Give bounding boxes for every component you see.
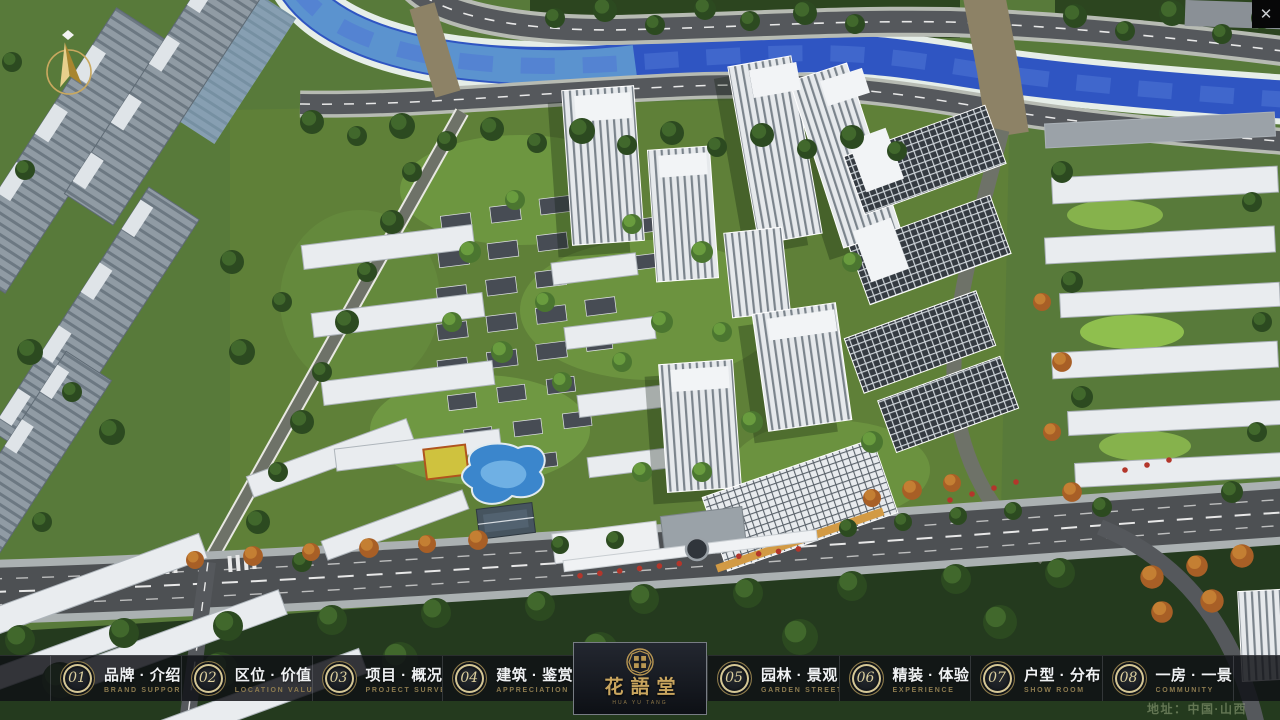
bottom-navbar: 01 品牌 · 介绍 BRAND SUPPORT 02 区位 · 价值 LOCA… — [0, 655, 1280, 701]
project-name: 花語堂 — [597, 678, 682, 697]
nav-item-subtitle: GARDEN STREET — [761, 687, 839, 694]
nav-item-subtitle: LOCATION VALUE — [235, 687, 312, 694]
nav-item-room-view[interactable]: 08 一房 · 一景 COMMUNITY — [1102, 656, 1235, 701]
nav-item-location-value[interactable]: 02 区位 · 价值 LOCATION VALUE — [181, 656, 312, 701]
nav-item-floorplan-distribution[interactable]: 07 户型 · 分布 SHOW ROOM — [970, 656, 1102, 701]
nav-item-subtitle: COMMUNITY — [1156, 687, 1233, 694]
nav-item-title: 园林 · 景观 — [761, 664, 839, 685]
nav-item-title: 户型 · 分布 — [1024, 664, 1101, 685]
close-icon: ✕ — [1260, 5, 1273, 23]
nav-item-title: 一房 · 一景 — [1156, 664, 1233, 685]
project-address: 地址：中国·山西 — [1147, 700, 1247, 717]
nav-number-badge: 08 — [1112, 661, 1147, 696]
nav-item-title: 项目 · 概况 — [366, 664, 443, 685]
nav-number-badge: 07 — [980, 661, 1015, 696]
seal-icon — [625, 647, 655, 677]
nav-item-subtitle: APPRECIATION — [496, 687, 573, 694]
nav-number-badge: 04 — [452, 661, 487, 696]
nav-number-badge: 06 — [849, 661, 884, 696]
nav-item-brand-intro[interactable]: 01 品牌 · 介绍 BRAND SUPPORT — [50, 656, 181, 701]
nav-item-architecture[interactable]: 04 建筑 · 鉴赏 APPRECIATION — [442, 656, 573, 701]
sales-presentation-window: ✕ 01 品牌 · 介绍 BRAND SUPPORT 02 区位 · 价值 LO… — [0, 0, 1280, 720]
nav-group-right: 05 园林 · 景观 GARDEN STREET 06 精装 · 体验 EXPE… — [707, 656, 1280, 701]
nav-item-title: 品牌 · 介绍 — [104, 664, 181, 685]
compass-icon[interactable] — [42, 28, 98, 104]
logo-slot: 花語堂 HUA YU TANG — [573, 656, 707, 701]
nav-item-landscape[interactable]: 05 园林 · 景观 GARDEN STREET — [707, 656, 839, 701]
nav-item-project-overview[interactable]: 03 项目 · 概况 PROJECT SURVEY — [312, 656, 443, 701]
nav-number-badge: 05 — [717, 661, 752, 696]
masterplan-3d-view[interactable] — [0, 0, 1280, 720]
project-logo-panel[interactable]: 花語堂 HUA YU TANG — [573, 642, 707, 715]
nav-number-badge: 01 — [60, 661, 95, 696]
nav-item-title: 建筑 · 鉴赏 — [496, 664, 573, 685]
nav-group-left: 01 品牌 · 介绍 BRAND SUPPORT 02 区位 · 价值 LOCA… — [0, 656, 573, 701]
nav-item-subtitle: BRAND SUPPORT — [104, 687, 181, 694]
nav-item-title: 精装 · 体验 — [893, 664, 970, 685]
close-button[interactable]: ✕ — [1252, 0, 1280, 28]
nav-number-badge: 03 — [322, 661, 357, 696]
nav-item-subtitle: EXPERIENCE — [893, 687, 970, 694]
nav-item-subtitle: PROJECT SURVEY — [366, 687, 443, 694]
nav-item-title: 区位 · 价值 — [235, 664, 312, 685]
nav-number-badge: 02 — [191, 661, 226, 696]
nav-item-interior-experience[interactable]: 06 精装 · 体验 EXPERIENCE — [839, 656, 971, 701]
project-name-en: HUA YU TANG — [612, 700, 667, 706]
nav-item-subtitle: SHOW ROOM — [1024, 687, 1101, 694]
